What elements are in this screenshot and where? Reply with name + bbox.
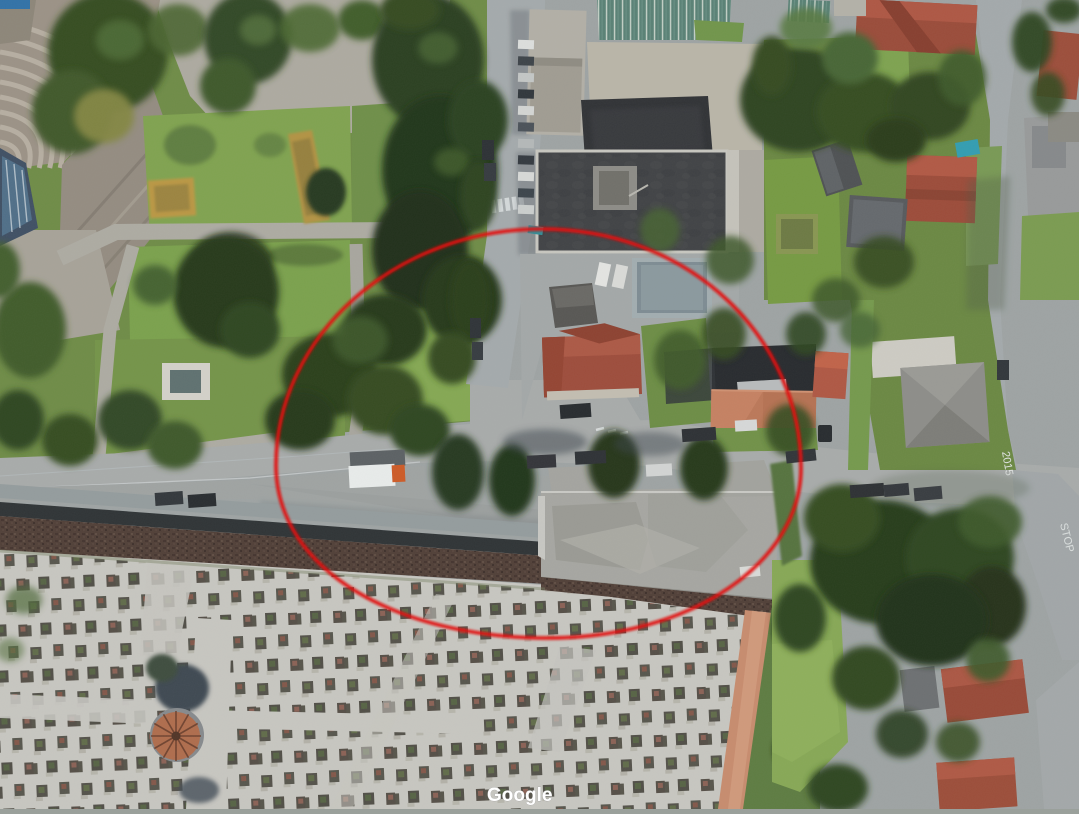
svg-text:Google: Google [487, 785, 552, 806]
